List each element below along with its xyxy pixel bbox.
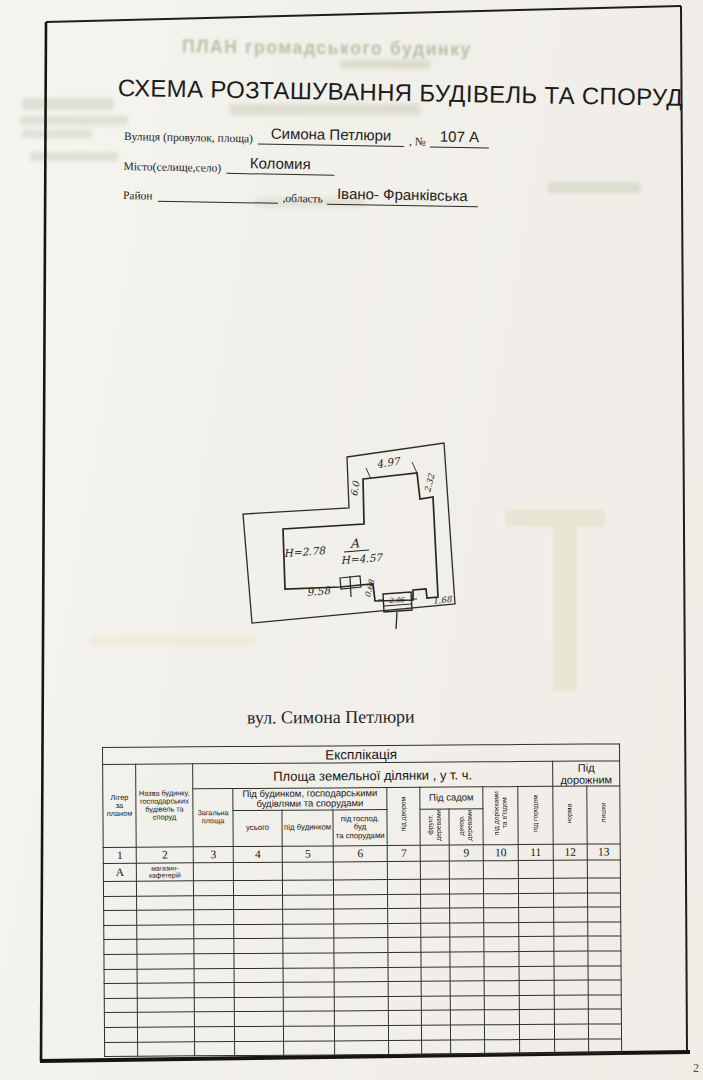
table-cell <box>137 910 194 925</box>
table-cell <box>588 951 621 966</box>
table-cell <box>388 894 421 909</box>
col-under-house-header: під будинком <box>282 810 333 846</box>
table-cell <box>387 861 420 879</box>
table-cell <box>333 861 387 879</box>
table-cell <box>334 894 388 909</box>
table-cell <box>137 983 194 998</box>
col-number: 12 <box>553 844 587 860</box>
page-frame-left <box>41 22 46 1061</box>
table-cell <box>282 880 333 895</box>
table-cell <box>388 1025 421 1040</box>
table-cell <box>519 937 554 952</box>
table-cell <box>194 895 234 910</box>
table-cell <box>334 967 388 982</box>
gate-line <box>396 612 397 629</box>
table-cell <box>588 965 621 980</box>
table-cell <box>554 907 588 922</box>
table-cell <box>519 1010 554 1025</box>
table-cell <box>421 937 450 952</box>
dim-tick <box>366 468 371 479</box>
table-cell <box>484 937 519 952</box>
table-cell <box>193 881 233 896</box>
table-cell <box>387 879 420 894</box>
table-cell <box>484 1024 519 1039</box>
table-cell <box>519 908 554 923</box>
table-cell <box>137 954 194 969</box>
table-cell <box>283 924 334 939</box>
table-cell <box>234 997 283 1012</box>
table-cell <box>554 951 588 966</box>
under-building-group-header: Під будинком, господарськими будівлями т… <box>233 788 387 811</box>
table-cell <box>451 1039 485 1054</box>
table-cell <box>519 922 554 937</box>
table-cell <box>421 967 450 982</box>
number-label: , № <box>404 135 430 147</box>
table-cell <box>388 981 421 996</box>
dim-bottom-label: 9.58 <box>306 584 332 598</box>
table-cell <box>283 894 334 909</box>
table-cell <box>234 895 283 910</box>
table-cell <box>554 980 588 995</box>
table-cell <box>388 923 421 938</box>
table-cell <box>484 995 519 1010</box>
table-cell <box>334 982 388 997</box>
region-value: Івано- Франківська <box>327 185 478 208</box>
district-label: Район <box>123 189 158 202</box>
table-cell <box>334 1025 388 1040</box>
table-cell <box>234 909 283 924</box>
table-cell <box>104 910 137 925</box>
table-cell <box>193 863 233 881</box>
table-cell <box>588 892 621 907</box>
col-excess-label: лишки <box>599 803 607 823</box>
table-cell <box>284 1040 335 1055</box>
table-cell <box>388 908 421 923</box>
table-cell <box>283 1011 334 1026</box>
table-cell <box>588 980 621 995</box>
table-cell <box>388 952 421 967</box>
table-cell <box>450 893 484 908</box>
table-cell <box>518 860 553 878</box>
table-cell <box>104 1027 137 1042</box>
table-cell <box>421 1025 450 1040</box>
table-cell <box>519 966 554 981</box>
col-total-header: Загальна площа <box>193 789 233 847</box>
table-cell <box>450 1025 484 1040</box>
table-cell <box>104 954 137 969</box>
table-cell <box>554 966 588 981</box>
dim-left-label: 6.0 <box>348 480 362 498</box>
table-cell <box>520 1039 555 1054</box>
table-cell <box>485 1039 520 1054</box>
table-cell <box>588 1024 621 1039</box>
col-number: 2 <box>136 847 193 863</box>
table-cell <box>588 995 621 1010</box>
col-number: 11 <box>518 844 553 860</box>
table-cell <box>195 1041 235 1056</box>
table-cell <box>587 878 620 893</box>
table-cell <box>194 954 234 969</box>
table-cell <box>233 880 282 895</box>
col-number: 9 <box>449 845 483 861</box>
table-cell <box>334 996 388 1011</box>
col-number: 4 <box>233 846 282 862</box>
table-cell <box>234 953 283 968</box>
table-cell <box>104 925 137 940</box>
garden-group-header: Під садом <box>420 787 483 809</box>
table-cell <box>449 879 483 894</box>
page-frame-top <box>46 6 681 22</box>
table-cell <box>334 923 388 938</box>
building-letter: А <box>349 535 360 551</box>
table-cell <box>334 952 388 967</box>
col-number: 1 <box>103 847 136 863</box>
table-cell <box>389 1040 422 1055</box>
table-cell <box>553 878 587 893</box>
col-norm-header: норма <box>553 786 587 844</box>
city-label: Місто(селище,село) <box>123 160 226 174</box>
table-cell <box>519 951 554 966</box>
building-height-label: Н=4.57 <box>340 551 383 566</box>
dim-tick <box>412 462 417 473</box>
table-cell <box>450 966 484 981</box>
page-number: 2 <box>693 1061 699 1076</box>
row-a-liter: А <box>103 863 136 881</box>
col-number: 6 <box>333 845 387 861</box>
col-number: 5 <box>282 846 333 862</box>
table-cell <box>554 995 588 1010</box>
district-blank-line <box>157 188 277 204</box>
table-cell <box>104 896 137 911</box>
col-all-header: усього <box>233 810 282 846</box>
table-cell <box>334 1011 388 1026</box>
table-cell <box>194 924 234 939</box>
table-cell <box>588 1009 621 1024</box>
table-cell <box>194 1026 234 1041</box>
table-cell <box>421 996 450 1011</box>
table-cell <box>484 981 519 996</box>
table-cell <box>137 939 194 954</box>
table-cell <box>553 860 587 878</box>
porch-axis <box>350 576 351 597</box>
table-cell <box>234 1012 283 1027</box>
table-cell <box>421 923 450 938</box>
table-cell <box>234 924 283 939</box>
street-label: Вулиця (провулок, площа) <box>124 130 258 144</box>
table-cell <box>588 907 621 922</box>
table-cell <box>519 995 554 1010</box>
table-cell <box>450 996 484 1011</box>
table-group-row: Літер за планом Назва будинку, господарс… <box>103 761 620 790</box>
col-under-hoz-header: під господ. буд та спорудами <box>333 809 387 845</box>
table-cell <box>194 1012 234 1027</box>
col-name-header: Назва будинку, господарських будівель та… <box>136 764 194 847</box>
table-cell <box>421 952 450 967</box>
table-cell <box>519 893 554 908</box>
table-cell <box>335 1040 389 1055</box>
table-cell <box>137 925 194 940</box>
table-cell <box>234 939 283 954</box>
table-cell <box>137 1012 194 1027</box>
table-cell <box>420 861 449 879</box>
table-cell <box>518 878 553 893</box>
table-cell <box>588 922 621 937</box>
table-cell <box>420 879 449 894</box>
table-cell <box>104 983 137 998</box>
table-cell <box>283 982 334 997</box>
table-cell <box>137 1027 194 1042</box>
col-garden2-header: під городом <box>518 786 553 844</box>
table-cell <box>104 940 137 955</box>
table-cell <box>484 966 519 981</box>
table-cell <box>194 939 234 954</box>
plot-outline <box>243 443 455 623</box>
table-cell <box>484 1010 519 1025</box>
table-cell <box>450 937 484 952</box>
dim-right-label: 2.32 <box>422 472 436 493</box>
col-yard-label: під двором <box>399 797 407 832</box>
table-cell <box>554 893 588 908</box>
table-empty-rows <box>103 878 621 1057</box>
col-garden2-label: під городом <box>531 795 539 832</box>
table-cell <box>137 998 194 1013</box>
table-cell <box>334 909 388 924</box>
dim-top-label: 4.97 <box>376 455 402 470</box>
col-norm-label: норма <box>566 803 574 823</box>
table-cell <box>137 968 194 983</box>
table-cell <box>234 982 283 997</box>
street-value: Симона Петлюри <box>258 124 404 147</box>
table-cell <box>283 953 334 968</box>
table-cell <box>484 893 519 908</box>
table-cell <box>450 923 484 938</box>
table-cell <box>388 996 421 1011</box>
col-decor-header: декор. деревами <box>449 809 483 845</box>
col-liter-header: Літер за планом <box>103 764 137 847</box>
table-cell <box>484 952 519 967</box>
table-cell <box>388 938 421 953</box>
table-cell <box>233 862 282 880</box>
table-cell <box>422 1040 451 1055</box>
table-cell <box>194 968 234 983</box>
col-excess-header: лишки <box>587 786 620 844</box>
col-number: 13 <box>587 844 620 860</box>
scanned-page: { "page": {"number": "2"}, "ghost": {"re… <box>0 0 703 1080</box>
col-yard-header: під двором <box>387 787 420 845</box>
city-value: Коломия <box>226 154 334 176</box>
table-cell <box>194 997 234 1012</box>
table-cell <box>484 922 519 937</box>
table-cell <box>283 1026 334 1041</box>
table-row <box>105 1038 622 1056</box>
table-cell <box>138 1041 195 1056</box>
table-cell <box>588 936 621 951</box>
table-cell <box>483 879 518 894</box>
table-cell <box>136 881 193 896</box>
col-fruit-header: фрукт. деревами <box>420 809 449 845</box>
table-cell <box>450 981 484 996</box>
page-frame-right <box>681 6 687 1052</box>
table-cell <box>283 967 334 982</box>
table-cell <box>421 894 450 909</box>
street-caption: вул. Симона Петлюри <box>247 706 415 728</box>
table-cell <box>587 860 620 878</box>
table-cell <box>519 1024 554 1039</box>
table-cell <box>388 967 421 982</box>
col-paths-header: під доріжками та в'їздом <box>483 787 518 845</box>
col-number: 7 <box>387 845 420 861</box>
region-label: ,область <box>277 192 327 205</box>
table-cell <box>554 1009 588 1024</box>
table-cell <box>137 895 194 910</box>
table-cell <box>483 861 518 879</box>
col-paths-label: під доріжками та в'їздом <box>492 792 509 836</box>
table-cell <box>104 998 137 1013</box>
row-a-name: магазин- кафетерій <box>136 863 193 881</box>
table-cell <box>282 862 333 880</box>
table-cell <box>235 1041 284 1056</box>
road-group-header: Під дорожним <box>553 761 620 786</box>
table-cell <box>104 969 137 984</box>
col-number: 10 <box>483 845 518 861</box>
table-cell <box>194 983 234 998</box>
col-number: 3 <box>193 847 233 863</box>
table-cell <box>554 936 588 951</box>
table-cell <box>421 908 450 923</box>
area-group-header: Площа земельної ділянки , у т. ч. <box>193 761 553 789</box>
table-cell <box>388 1011 421 1026</box>
explication-table: Експлікація Літер за планом Назва будинк… <box>102 743 622 1057</box>
number-value: 107 А <box>430 127 490 148</box>
table-cell <box>234 968 283 983</box>
table-cell <box>333 879 387 894</box>
table-cell <box>421 981 450 996</box>
table-cell <box>283 938 334 953</box>
dim-bottom-right-label: 1.68 <box>432 594 452 606</box>
table-cell <box>449 861 483 879</box>
table-cell <box>554 1024 588 1039</box>
table-cell <box>554 922 588 937</box>
table-cell <box>283 909 334 924</box>
table-cell <box>103 881 136 896</box>
dim-gate-label: 2.06 <box>389 596 406 605</box>
table-cell <box>450 952 484 967</box>
left-height-label: Н=2.78 <box>283 544 326 559</box>
table-cell <box>104 1013 137 1028</box>
table-cell <box>334 938 388 953</box>
table-cell <box>283 997 334 1012</box>
table-cell <box>589 1038 622 1053</box>
table-cell <box>450 1010 484 1025</box>
table-cell <box>105 1042 138 1057</box>
col-number <box>420 845 449 861</box>
table-cell <box>234 1026 283 1041</box>
table-cell <box>519 980 554 995</box>
table-cell <box>421 1010 450 1025</box>
col-fruit-label: фрукт. деревами <box>426 809 443 840</box>
table-cell <box>194 910 234 925</box>
city-row: Місто(селище,село) Коломия <box>123 152 334 176</box>
col-decor-label: декор. деревами <box>458 809 475 840</box>
table-cell <box>450 908 484 923</box>
table-cell <box>555 1039 589 1054</box>
table-cell <box>484 908 519 923</box>
